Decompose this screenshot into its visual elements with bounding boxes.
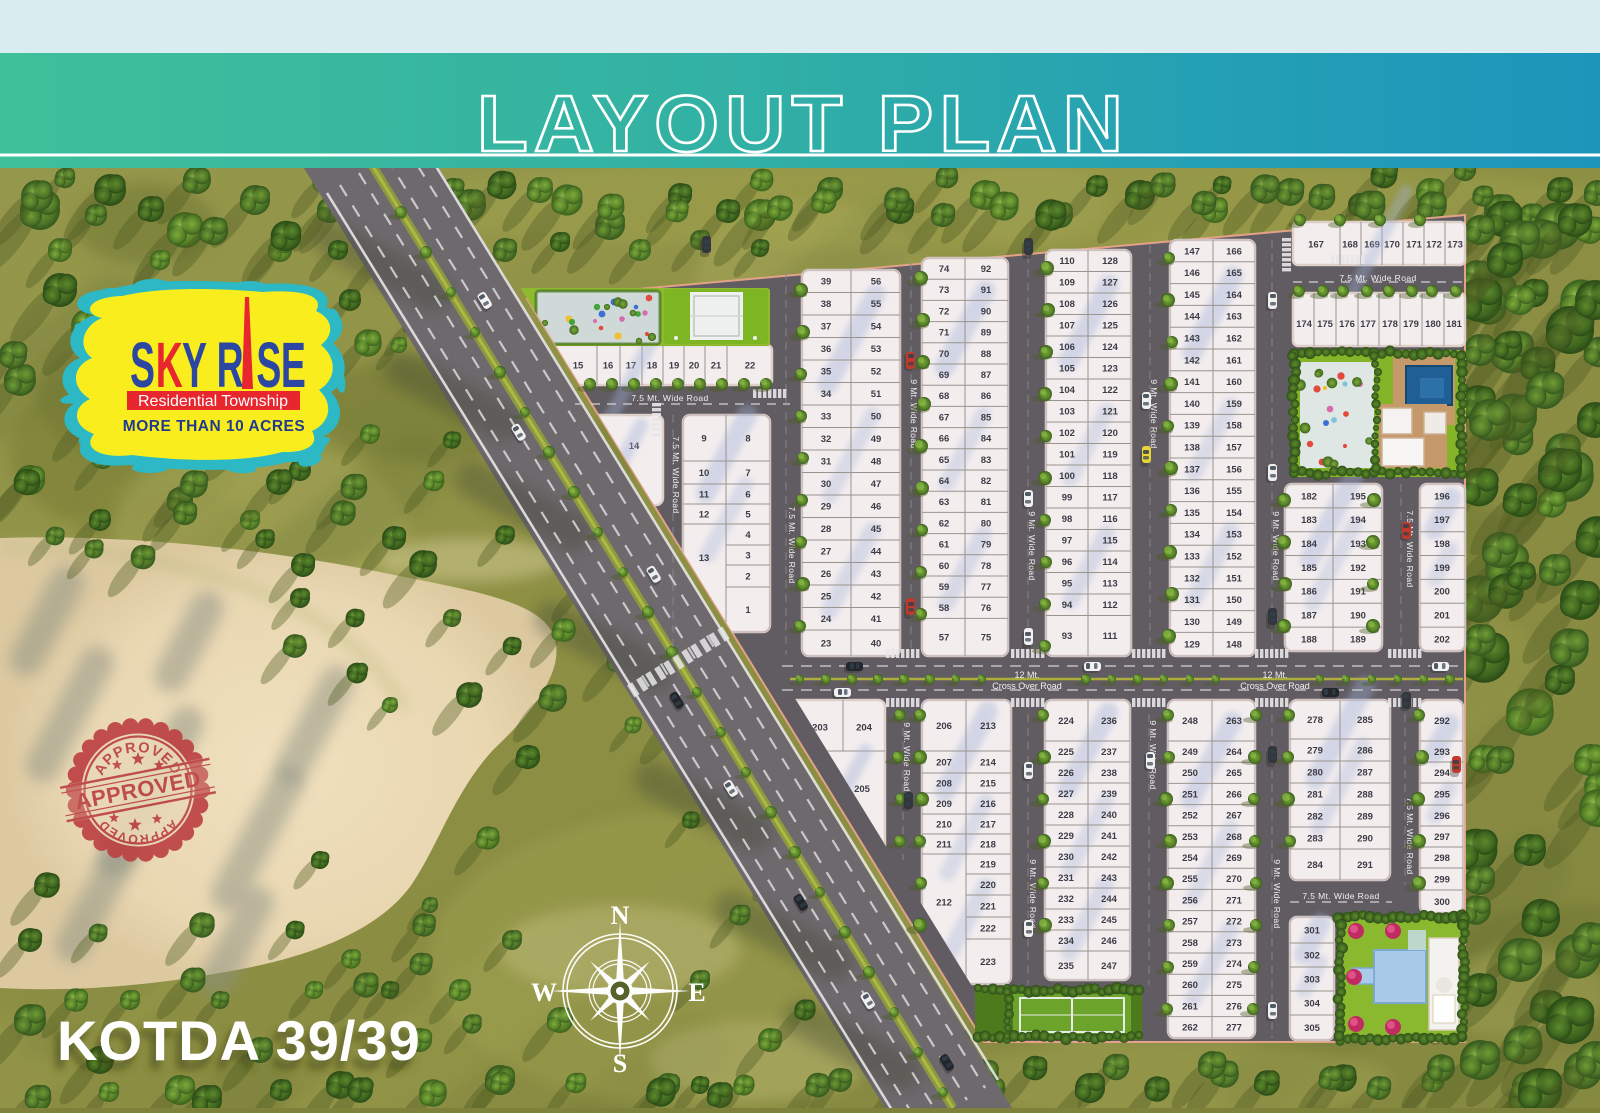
svg-text:4: 4 (745, 530, 751, 541)
svg-text:141: 141 (1184, 377, 1201, 388)
svg-text:211: 211 (936, 839, 952, 850)
svg-text:7.5 Mt. Wide Road: 7.5 Mt. Wide Road (631, 393, 708, 403)
svg-text:46: 46 (871, 502, 882, 513)
svg-text:271: 271 (1226, 895, 1243, 906)
svg-text:39: 39 (821, 277, 832, 288)
svg-text:122: 122 (1102, 385, 1118, 396)
svg-text:284: 284 (1307, 860, 1324, 871)
svg-text:174: 174 (1296, 319, 1313, 330)
svg-text:23: 23 (821, 638, 832, 649)
svg-text:31: 31 (821, 457, 832, 468)
svg-text:248: 248 (1182, 716, 1198, 727)
svg-text:58: 58 (939, 603, 950, 614)
svg-text:204: 204 (856, 722, 873, 733)
svg-text:246: 246 (1101, 936, 1117, 947)
svg-text:151: 151 (1226, 573, 1243, 584)
svg-text:215: 215 (980, 778, 997, 789)
svg-text:127: 127 (1102, 278, 1118, 289)
svg-text:12 Mt.: 12 Mt. (1262, 670, 1287, 680)
svg-text:107: 107 (1059, 321, 1075, 332)
svg-text:181: 181 (1446, 319, 1463, 330)
svg-text:250: 250 (1182, 768, 1198, 779)
svg-text:68: 68 (939, 391, 950, 402)
svg-text:282: 282 (1307, 811, 1323, 822)
svg-text:150: 150 (1226, 595, 1242, 606)
svg-text:111: 111 (1103, 631, 1119, 642)
svg-text:257: 257 (1182, 917, 1198, 928)
svg-text:110: 110 (1059, 256, 1074, 267)
svg-text:253: 253 (1182, 832, 1198, 843)
svg-text:241: 241 (1101, 831, 1118, 842)
svg-text:278: 278 (1307, 715, 1323, 726)
svg-text:268: 268 (1226, 832, 1242, 843)
svg-text:105: 105 (1059, 364, 1076, 375)
svg-text:28: 28 (821, 524, 832, 535)
svg-text:10: 10 (699, 468, 710, 479)
svg-text:9 Mt. Wide Road: 9 Mt. Wide Road (1028, 859, 1038, 928)
svg-text:18: 18 (647, 360, 658, 371)
svg-text:256: 256 (1182, 895, 1198, 906)
svg-text:245: 245 (1101, 915, 1118, 926)
svg-text:33: 33 (821, 412, 832, 423)
svg-text:213: 213 (980, 721, 996, 732)
svg-text:134: 134 (1184, 530, 1201, 541)
svg-text:199: 199 (1434, 563, 1450, 574)
svg-text:290: 290 (1357, 833, 1373, 844)
svg-text:1: 1 (745, 605, 751, 616)
svg-text:155: 155 (1226, 486, 1243, 497)
svg-text:227: 227 (1058, 789, 1074, 800)
svg-text:225: 225 (1058, 747, 1075, 758)
svg-text:180: 180 (1425, 319, 1441, 330)
svg-text:67: 67 (939, 412, 950, 423)
svg-text:77: 77 (981, 582, 992, 593)
svg-text:291: 291 (1357, 860, 1374, 871)
svg-text:104: 104 (1059, 385, 1076, 396)
svg-text:279: 279 (1307, 745, 1323, 756)
svg-text:238: 238 (1101, 768, 1117, 779)
svg-text:182: 182 (1301, 491, 1317, 502)
svg-text:118: 118 (1102, 471, 1117, 482)
svg-text:8: 8 (745, 433, 750, 444)
svg-text:78: 78 (981, 561, 992, 572)
svg-text:92: 92 (981, 264, 992, 275)
svg-text:221: 221 (980, 901, 997, 912)
svg-text:61: 61 (939, 540, 950, 551)
svg-text:232: 232 (1058, 894, 1074, 905)
svg-text:97: 97 (1062, 536, 1073, 547)
svg-text:100: 100 (1059, 471, 1075, 482)
svg-text:305: 305 (1304, 1023, 1321, 1034)
svg-text:56: 56 (871, 277, 882, 288)
svg-text:119: 119 (1102, 450, 1117, 461)
svg-text:90: 90 (981, 306, 992, 317)
svg-text:37: 37 (821, 322, 832, 333)
svg-text:295: 295 (1434, 789, 1451, 800)
svg-text:231: 231 (1058, 873, 1075, 884)
svg-text:125: 125 (1102, 321, 1119, 332)
svg-text:54: 54 (871, 322, 882, 333)
svg-text:233: 233 (1058, 915, 1074, 926)
svg-text:147: 147 (1184, 246, 1200, 257)
svg-text:274: 274 (1226, 959, 1243, 970)
svg-text:76: 76 (981, 603, 992, 614)
svg-text:12: 12 (699, 509, 710, 520)
svg-text:177: 177 (1360, 319, 1376, 330)
svg-text:255: 255 (1182, 874, 1199, 885)
svg-text:243: 243 (1101, 873, 1117, 884)
svg-text:240: 240 (1101, 810, 1117, 821)
svg-text:219: 219 (980, 859, 996, 870)
svg-text:222: 222 (980, 923, 996, 934)
svg-text:137: 137 (1184, 464, 1200, 475)
svg-text:133: 133 (1184, 552, 1200, 563)
svg-text:9 Mt. Wide Road: 9 Mt. Wide Road (1272, 859, 1282, 928)
svg-text:301: 301 (1304, 925, 1321, 936)
svg-text:7: 7 (745, 468, 750, 479)
svg-text:259: 259 (1182, 959, 1198, 970)
svg-text:292: 292 (1434, 716, 1450, 727)
svg-text:148: 148 (1226, 640, 1242, 651)
svg-text:218: 218 (980, 839, 996, 850)
svg-text:70: 70 (939, 349, 950, 360)
svg-text:212: 212 (936, 897, 952, 908)
svg-text:224: 224 (1058, 716, 1075, 727)
svg-text:7.5 Mt. Wide Road: 7.5 Mt. Wide Road (1302, 891, 1379, 901)
svg-text:249: 249 (1182, 747, 1198, 758)
svg-text:88: 88 (981, 349, 992, 360)
svg-text:230: 230 (1058, 852, 1074, 863)
svg-text:48: 48 (871, 457, 882, 468)
svg-text:201: 201 (1434, 611, 1451, 622)
svg-text:152: 152 (1226, 552, 1242, 563)
svg-text:285: 285 (1357, 715, 1374, 726)
svg-text:281: 281 (1307, 789, 1324, 800)
svg-text:42: 42 (871, 592, 882, 603)
svg-text:N: N (611, 901, 630, 930)
svg-text:6: 6 (745, 489, 750, 500)
svg-text:Residential Township: Residential Township (138, 393, 288, 410)
svg-text:261: 261 (1182, 1001, 1199, 1012)
svg-text:197: 197 (1434, 515, 1450, 526)
svg-text:260: 260 (1182, 980, 1198, 991)
svg-text:55: 55 (871, 299, 882, 310)
svg-text:40: 40 (871, 638, 882, 649)
svg-text:106: 106 (1059, 342, 1075, 353)
svg-text:86: 86 (981, 391, 992, 402)
svg-text:99: 99 (1062, 493, 1073, 504)
svg-text:135: 135 (1184, 508, 1201, 519)
svg-text:128: 128 (1102, 256, 1118, 267)
svg-text:210: 210 (936, 819, 952, 830)
svg-text:200: 200 (1434, 587, 1450, 598)
svg-text:159: 159 (1226, 399, 1242, 410)
svg-text:239: 239 (1101, 789, 1117, 800)
svg-text:84: 84 (981, 434, 992, 445)
svg-text:214: 214 (980, 757, 997, 768)
svg-text:115: 115 (1102, 536, 1118, 547)
svg-text:298: 298 (1434, 853, 1450, 864)
svg-text:293: 293 (1434, 747, 1450, 758)
svg-text:24: 24 (821, 614, 832, 625)
svg-text:237: 237 (1101, 747, 1117, 758)
svg-text:266: 266 (1226, 789, 1242, 800)
svg-text:93: 93 (1062, 631, 1073, 642)
svg-text:79: 79 (981, 540, 992, 551)
svg-text:120: 120 (1102, 428, 1118, 439)
svg-text:165: 165 (1226, 268, 1243, 279)
svg-text:186: 186 (1301, 587, 1317, 598)
svg-text:172: 172 (1426, 239, 1442, 250)
svg-text:44: 44 (871, 547, 882, 558)
svg-text:22: 22 (745, 360, 756, 371)
svg-text:304: 304 (1304, 998, 1321, 1009)
svg-text:124: 124 (1102, 342, 1119, 353)
svg-text:145: 145 (1184, 290, 1201, 301)
svg-text:139: 139 (1184, 421, 1200, 432)
svg-text:29: 29 (821, 502, 832, 513)
svg-text:45: 45 (871, 524, 882, 535)
svg-text:164: 164 (1226, 290, 1243, 301)
svg-text:Cross Over Road: Cross Over Road (1240, 681, 1310, 691)
svg-text:15: 15 (573, 360, 584, 371)
svg-text:108: 108 (1059, 299, 1075, 310)
svg-text:190: 190 (1350, 611, 1366, 622)
svg-text:254: 254 (1182, 853, 1199, 864)
svg-text:E: E (688, 978, 705, 1007)
svg-text:158: 158 (1226, 421, 1242, 432)
svg-text:113: 113 (1102, 579, 1117, 590)
svg-text:244: 244 (1101, 894, 1118, 905)
svg-text:126: 126 (1102, 299, 1118, 310)
svg-text:34: 34 (821, 389, 832, 400)
svg-text:121: 121 (1102, 407, 1119, 418)
svg-text:9: 9 (701, 433, 706, 444)
svg-text:80: 80 (981, 518, 992, 529)
svg-text:270: 270 (1226, 874, 1242, 885)
svg-text:35: 35 (821, 367, 832, 378)
svg-text:173: 173 (1447, 239, 1463, 250)
svg-text:154: 154 (1226, 508, 1243, 519)
svg-text:129: 129 (1184, 640, 1200, 651)
svg-text:102: 102 (1059, 428, 1075, 439)
svg-text:235: 235 (1058, 961, 1075, 972)
svg-text:117: 117 (1102, 493, 1117, 504)
svg-text:5: 5 (745, 509, 751, 520)
svg-text:205: 205 (854, 784, 871, 795)
svg-text:71: 71 (939, 328, 950, 339)
svg-text:132: 132 (1184, 573, 1200, 584)
svg-text:167: 167 (1308, 239, 1324, 250)
svg-text:267: 267 (1226, 811, 1242, 822)
svg-text:65: 65 (939, 455, 950, 466)
svg-text:223: 223 (980, 957, 996, 968)
svg-text:64: 64 (939, 476, 950, 487)
svg-text:297: 297 (1434, 832, 1450, 843)
svg-text:294: 294 (1434, 768, 1451, 779)
svg-text:75: 75 (981, 633, 992, 644)
svg-text:13: 13 (699, 553, 710, 564)
svg-text:130: 130 (1184, 617, 1200, 628)
svg-text:51: 51 (871, 389, 882, 400)
svg-text:178: 178 (1382, 319, 1398, 330)
svg-text:153: 153 (1226, 530, 1242, 541)
svg-text:234: 234 (1058, 936, 1075, 947)
svg-text:179: 179 (1403, 319, 1419, 330)
svg-text:216: 216 (980, 799, 996, 810)
svg-text:85: 85 (981, 412, 992, 423)
svg-text:263: 263 (1226, 716, 1242, 727)
svg-text:7.5 Mt. Wide Road: 7.5 Mt. Wide Road (671, 436, 681, 513)
svg-text:236: 236 (1101, 716, 1117, 727)
svg-text:32: 32 (821, 434, 832, 445)
svg-text:286: 286 (1357, 745, 1373, 756)
svg-text:60: 60 (939, 561, 950, 572)
svg-text:103: 103 (1059, 407, 1075, 418)
svg-text:Cross Over Road: Cross Over Road (992, 681, 1062, 691)
svg-text:273: 273 (1226, 938, 1242, 949)
svg-text:30: 30 (821, 479, 832, 490)
svg-text:202: 202 (1434, 635, 1450, 646)
svg-text:176: 176 (1339, 319, 1355, 330)
svg-text:207: 207 (936, 757, 952, 768)
svg-text:91: 91 (981, 285, 992, 296)
svg-text:131: 131 (1184, 595, 1201, 606)
svg-text:109: 109 (1059, 278, 1075, 289)
svg-text:11: 11 (699, 489, 710, 500)
svg-text:25: 25 (821, 592, 832, 603)
svg-text:47: 47 (871, 479, 882, 490)
svg-text:38: 38 (821, 299, 832, 310)
svg-text:52: 52 (871, 367, 882, 378)
svg-text:206: 206 (936, 721, 952, 732)
svg-text:57: 57 (939, 633, 950, 644)
svg-text:160: 160 (1226, 377, 1242, 388)
svg-text:277: 277 (1226, 1023, 1242, 1034)
svg-text:262: 262 (1182, 1023, 1198, 1034)
svg-text:189: 189 (1350, 635, 1366, 646)
svg-text:289: 289 (1357, 811, 1373, 822)
svg-text:275: 275 (1226, 980, 1243, 991)
svg-text:300: 300 (1434, 897, 1450, 908)
svg-text:251: 251 (1182, 789, 1199, 800)
svg-text:166: 166 (1226, 246, 1242, 257)
svg-text:228: 228 (1058, 810, 1074, 821)
svg-text:MORE THAN 10 ACRES: MORE THAN 10 ACRES (123, 418, 305, 435)
svg-text:276: 276 (1226, 1001, 1242, 1012)
svg-text:LAYOUT PLAN: LAYOUT PLAN (477, 79, 1129, 168)
svg-text:101: 101 (1059, 450, 1076, 461)
svg-text:187: 187 (1301, 611, 1317, 622)
svg-text:87: 87 (981, 370, 992, 381)
svg-text:89: 89 (981, 328, 992, 339)
svg-text:43: 43 (871, 569, 882, 580)
svg-text:208: 208 (936, 778, 952, 789)
svg-text:299: 299 (1434, 874, 1450, 885)
svg-text:63: 63 (939, 497, 950, 508)
svg-text:283: 283 (1307, 833, 1323, 844)
svg-text:7.5 Mt. Wide Road: 7.5 Mt. Wide Road (1339, 273, 1416, 283)
svg-text:21: 21 (711, 360, 722, 371)
svg-text:198: 198 (1434, 539, 1450, 550)
svg-text:19: 19 (669, 360, 680, 371)
svg-text:171: 171 (1406, 239, 1423, 250)
svg-text:26: 26 (821, 569, 832, 580)
svg-text:242: 242 (1101, 852, 1117, 863)
svg-text:226: 226 (1058, 768, 1074, 779)
svg-text:95: 95 (1062, 579, 1073, 590)
svg-text:74: 74 (939, 264, 950, 275)
svg-text:144: 144 (1184, 312, 1201, 323)
svg-text:50: 50 (871, 412, 882, 423)
svg-text:184: 184 (1301, 539, 1318, 550)
svg-text:96: 96 (1062, 557, 1073, 568)
svg-text:27: 27 (821, 547, 832, 558)
svg-text:264: 264 (1226, 747, 1243, 758)
svg-text:116: 116 (1102, 514, 1117, 525)
svg-text:287: 287 (1357, 767, 1373, 778)
svg-text:269: 269 (1226, 853, 1242, 864)
svg-text:168: 168 (1342, 239, 1358, 250)
svg-text:175: 175 (1317, 319, 1334, 330)
svg-text:143: 143 (1184, 334, 1200, 345)
svg-text:157: 157 (1226, 443, 1242, 454)
svg-text:217: 217 (980, 819, 996, 830)
svg-text:136: 136 (1184, 486, 1200, 497)
svg-text:149: 149 (1226, 617, 1242, 628)
svg-text:146: 146 (1184, 268, 1200, 279)
svg-text:163: 163 (1226, 312, 1242, 323)
svg-text:16: 16 (603, 360, 614, 371)
svg-text:59: 59 (939, 582, 950, 593)
svg-text:252: 252 (1182, 811, 1198, 822)
svg-text:296: 296 (1434, 811, 1450, 822)
svg-text:73: 73 (939, 285, 950, 296)
svg-text:72: 72 (939, 306, 950, 317)
svg-text:82: 82 (981, 476, 992, 487)
svg-text:2: 2 (745, 571, 750, 582)
svg-text:196: 196 (1434, 491, 1450, 502)
svg-text:3: 3 (745, 550, 750, 561)
svg-text:185: 185 (1301, 563, 1318, 574)
svg-text:288: 288 (1357, 789, 1373, 800)
svg-text:7.5 Mt. Wide Road: 7.5 Mt. Wide Road (1405, 797, 1415, 874)
svg-text:49: 49 (871, 434, 882, 445)
svg-text:303: 303 (1304, 974, 1320, 985)
svg-text:98: 98 (1062, 514, 1073, 525)
svg-text:272: 272 (1226, 917, 1242, 928)
svg-text:KOTDA 39/39: KOTDA 39/39 (57, 1009, 421, 1072)
svg-text:194: 194 (1350, 515, 1367, 526)
svg-text:188: 188 (1301, 635, 1317, 646)
svg-text:66: 66 (939, 434, 950, 445)
svg-text:302: 302 (1304, 950, 1320, 961)
svg-text:192: 192 (1350, 563, 1366, 574)
svg-text:112: 112 (1102, 600, 1117, 611)
svg-text:20: 20 (689, 360, 700, 371)
svg-text:265: 265 (1226, 768, 1243, 779)
svg-text:69: 69 (939, 370, 950, 381)
svg-text:114: 114 (1102, 557, 1118, 568)
svg-text:209: 209 (936, 799, 952, 810)
svg-text:W: W (531, 978, 557, 1007)
svg-text:162: 162 (1226, 334, 1242, 345)
svg-text:53: 53 (871, 344, 882, 355)
svg-text:138: 138 (1184, 443, 1200, 454)
svg-text:36: 36 (821, 344, 832, 355)
svg-text:83: 83 (981, 455, 992, 466)
svg-text:195: 195 (1350, 491, 1367, 502)
